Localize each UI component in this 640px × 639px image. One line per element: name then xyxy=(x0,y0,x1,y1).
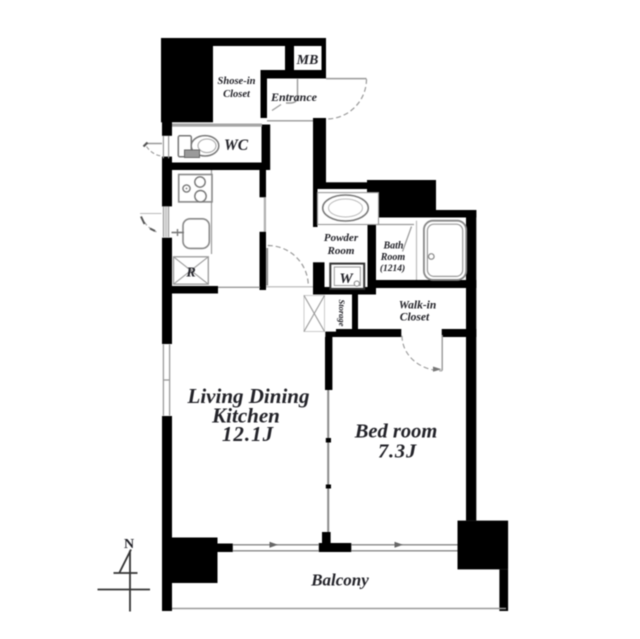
svg-text:Bath: Bath xyxy=(382,241,403,252)
svg-text:Closet: Closet xyxy=(400,312,430,324)
svg-text:Entrance: Entrance xyxy=(270,90,318,104)
svg-text:Storage: Storage xyxy=(337,300,347,327)
svg-text:WC: WC xyxy=(224,137,249,154)
svg-text:Shose-in: Shose-in xyxy=(218,76,256,87)
svg-text:Room: Room xyxy=(380,252,406,263)
svg-text:W: W xyxy=(339,271,354,287)
svg-text:Balcony: Balcony xyxy=(310,571,369,590)
svg-text:Bed room: Bed room xyxy=(354,421,438,443)
svg-text:Powder: Powder xyxy=(324,232,359,244)
svg-text:Closet: Closet xyxy=(223,89,251,100)
svg-text:Walk-in: Walk-in xyxy=(399,300,437,312)
svg-text:12.1J: 12.1J xyxy=(222,422,275,446)
svg-text:(1214): (1214) xyxy=(380,263,405,274)
svg-text:R: R xyxy=(185,266,195,281)
svg-text:N: N xyxy=(124,537,134,552)
svg-text:7.3J: 7.3J xyxy=(378,441,417,463)
svg-text:Room: Room xyxy=(327,245,355,257)
svg-text:MB: MB xyxy=(296,53,319,68)
